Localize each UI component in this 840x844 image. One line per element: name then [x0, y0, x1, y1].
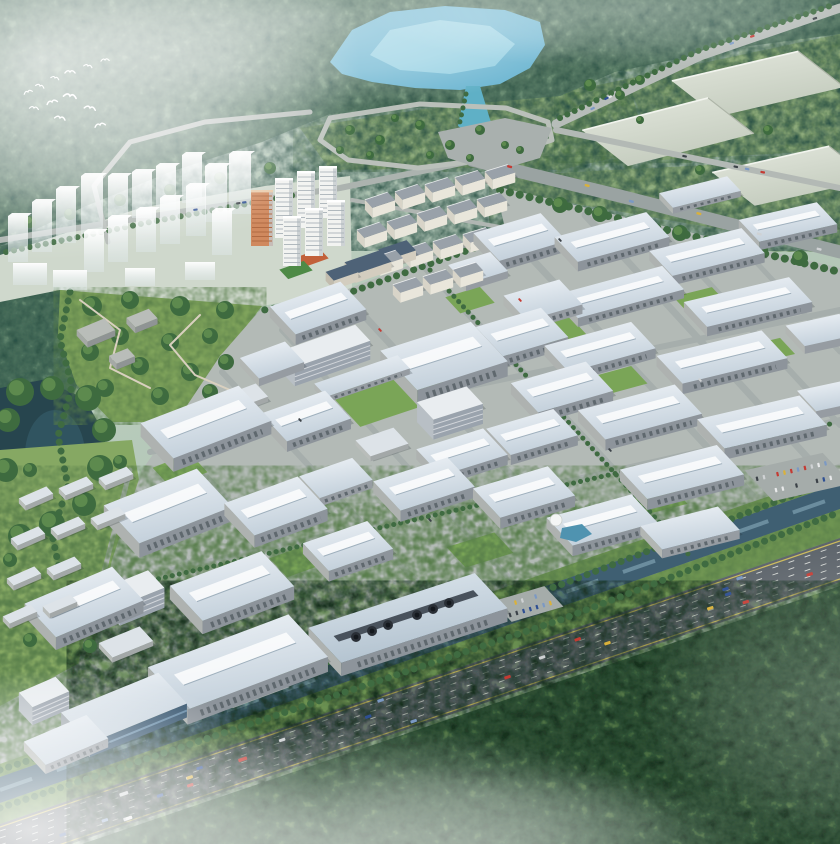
ghost-slab	[185, 262, 215, 280]
tree-clump-light	[204, 329, 213, 338]
tree-clump-light	[84, 640, 92, 648]
tree-clump-light	[98, 380, 108, 390]
tree-clump-light	[123, 292, 133, 302]
tree-clump-light	[218, 302, 228, 312]
scene-layers	[0, 0, 840, 844]
residential-tower	[283, 216, 301, 266]
tree-clump-light	[427, 152, 431, 156]
tree-clump-light	[114, 456, 122, 464]
ghost-slab	[53, 270, 87, 290]
roof-vent-core	[415, 613, 420, 618]
tree-clump-light	[517, 147, 521, 151]
roof-vent-core	[370, 629, 375, 634]
ghost-slab	[125, 268, 155, 286]
tree-clump-light	[794, 251, 803, 260]
tree-clump-light	[24, 634, 32, 642]
roof-vent-core	[386, 623, 391, 628]
tower-side	[319, 210, 323, 256]
roof-vent-core	[447, 601, 452, 606]
roof-vent-core	[431, 607, 436, 612]
tree-clump-light	[554, 198, 563, 207]
tree-clump-light	[204, 385, 213, 394]
tree-clump-light	[153, 388, 163, 398]
white-dome	[550, 514, 562, 526]
tree-clump-light	[94, 420, 107, 433]
tree-clump-light	[416, 121, 422, 127]
industrial-park-aerial-scene	[0, 0, 840, 844]
tree-clump-light	[476, 126, 482, 132]
tree-clump-light	[78, 387, 92, 401]
tower-roof	[327, 200, 345, 202]
tree-clump-light	[594, 207, 603, 216]
tree-clump-light	[585, 80, 592, 87]
tree-clump-light	[4, 554, 12, 562]
residential-tower	[327, 200, 345, 246]
tower-side	[297, 218, 301, 266]
tree-clump-light	[392, 115, 396, 119]
tree-clump-light	[42, 378, 55, 391]
roof-vent-core	[354, 635, 359, 640]
tree-clump-light	[172, 298, 183, 309]
tree-clump-light	[467, 155, 471, 159]
tree-clump-light	[616, 91, 622, 97]
tree-clump-light	[9, 380, 24, 395]
tree-clump-light	[696, 166, 702, 172]
tree-clump-light	[42, 513, 56, 527]
tree-clump-light	[90, 457, 104, 471]
tree-clump-light	[636, 76, 642, 82]
tree-clump-light	[24, 464, 32, 472]
tree-clump-light	[446, 141, 452, 147]
aerial-rendering-canvas	[0, 0, 840, 844]
ghost-slab	[13, 263, 47, 285]
tree-clump-light	[502, 142, 506, 146]
residential-tower	[305, 208, 323, 256]
tree-clump-light	[220, 355, 229, 364]
tree-clump-light	[637, 117, 641, 121]
tree-clump-light	[674, 226, 683, 235]
tree-clump-light	[764, 126, 770, 132]
